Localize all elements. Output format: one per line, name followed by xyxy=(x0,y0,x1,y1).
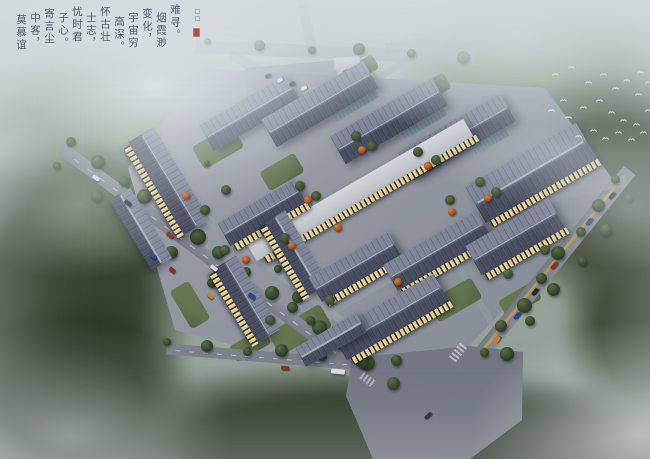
bird-icon xyxy=(645,98,650,103)
bird-icon xyxy=(602,126,609,131)
courtyard-tree xyxy=(265,315,275,325)
bird-icon xyxy=(560,88,567,93)
courtyard-tree xyxy=(475,177,485,187)
bird-icon xyxy=(585,70,592,75)
courtyard-tree xyxy=(445,195,455,205)
courtyard-tree xyxy=(220,245,230,255)
street-tree xyxy=(204,38,211,45)
street-tree xyxy=(91,155,105,169)
red-seal-stamp-icon xyxy=(193,28,200,37)
bus xyxy=(331,368,345,374)
street-tree xyxy=(407,49,416,58)
street-tree xyxy=(576,227,586,237)
autumn-tree xyxy=(242,256,250,264)
street-tree xyxy=(480,348,489,357)
bird-icon xyxy=(600,62,607,67)
bird-icon xyxy=(590,118,597,123)
calligraphy-column: 难寻。 xyxy=(168,4,181,42)
courtyard-tree xyxy=(367,141,377,151)
bird-icon xyxy=(565,105,572,110)
street-tree xyxy=(536,273,547,284)
bird-icon xyxy=(620,108,627,113)
calligraphy-signature: □□ xyxy=(194,8,201,22)
bird-icon xyxy=(640,120,647,125)
street-tree xyxy=(66,137,76,147)
autumn-tree xyxy=(182,192,190,200)
street-tree xyxy=(547,283,560,296)
street-tree xyxy=(53,162,61,170)
courtyard-tree xyxy=(295,181,305,191)
street-tree xyxy=(163,338,171,346)
bird-icon xyxy=(623,68,630,73)
bird-icon xyxy=(633,112,640,117)
street-tree xyxy=(551,246,565,260)
courtyard-tree xyxy=(280,233,290,243)
bird-icon xyxy=(645,70,650,75)
autumn-tree xyxy=(304,196,312,204)
autumn-tree xyxy=(448,208,456,216)
street-tree xyxy=(265,286,279,300)
street-tree xyxy=(600,224,612,236)
bird-icon xyxy=(635,82,642,87)
bird-icon xyxy=(612,76,619,81)
car xyxy=(281,366,289,371)
street-tree xyxy=(119,176,130,187)
bird-icon xyxy=(575,124,582,129)
bird-icon xyxy=(580,95,587,100)
autumn-tree xyxy=(334,224,342,232)
street-tree xyxy=(391,355,402,366)
bird-icon xyxy=(637,60,644,65)
street-tree xyxy=(500,347,514,361)
street-tree xyxy=(204,160,210,166)
street-tree xyxy=(525,316,535,326)
courtyard-tree xyxy=(200,205,210,215)
autumn-tree xyxy=(394,278,402,286)
street-tree xyxy=(353,43,365,55)
street-tree xyxy=(517,298,532,313)
bird-icon xyxy=(628,127,635,132)
bird-icon xyxy=(568,55,575,60)
courtyard-tree xyxy=(540,245,550,255)
street-tree xyxy=(387,377,400,390)
courtyard-tree xyxy=(311,191,321,201)
courtyard-tree xyxy=(431,155,441,165)
courtyard-tree xyxy=(503,269,513,279)
street-tree xyxy=(625,194,633,202)
bird-icon xyxy=(548,98,555,103)
courtyard-tree xyxy=(351,131,361,141)
courtyard-tree xyxy=(413,147,423,157)
calligraphy-column: 忧时君 xyxy=(70,6,83,44)
bird-icon xyxy=(608,100,615,105)
rendering-canvas: □□ 难寻。 烟霞渺 变化， 宇宙穷 高深。 怀古壮 士志， 忧时君 子心。 寄… xyxy=(0,0,650,459)
courtyard-tree xyxy=(491,187,501,197)
autumn-tree xyxy=(484,194,492,202)
autumn-tree xyxy=(358,146,366,154)
street-tree xyxy=(243,347,252,356)
courtyard-tree xyxy=(325,295,335,305)
autumn-tree xyxy=(424,162,432,170)
bird-icon xyxy=(552,62,559,67)
street-tree xyxy=(611,175,620,184)
calligraphy-column: 怀古壮 xyxy=(98,6,111,44)
bird-icon xyxy=(596,88,603,93)
bird-icon xyxy=(615,120,622,125)
autumn-tree xyxy=(288,242,296,250)
street-tree xyxy=(592,199,605,212)
